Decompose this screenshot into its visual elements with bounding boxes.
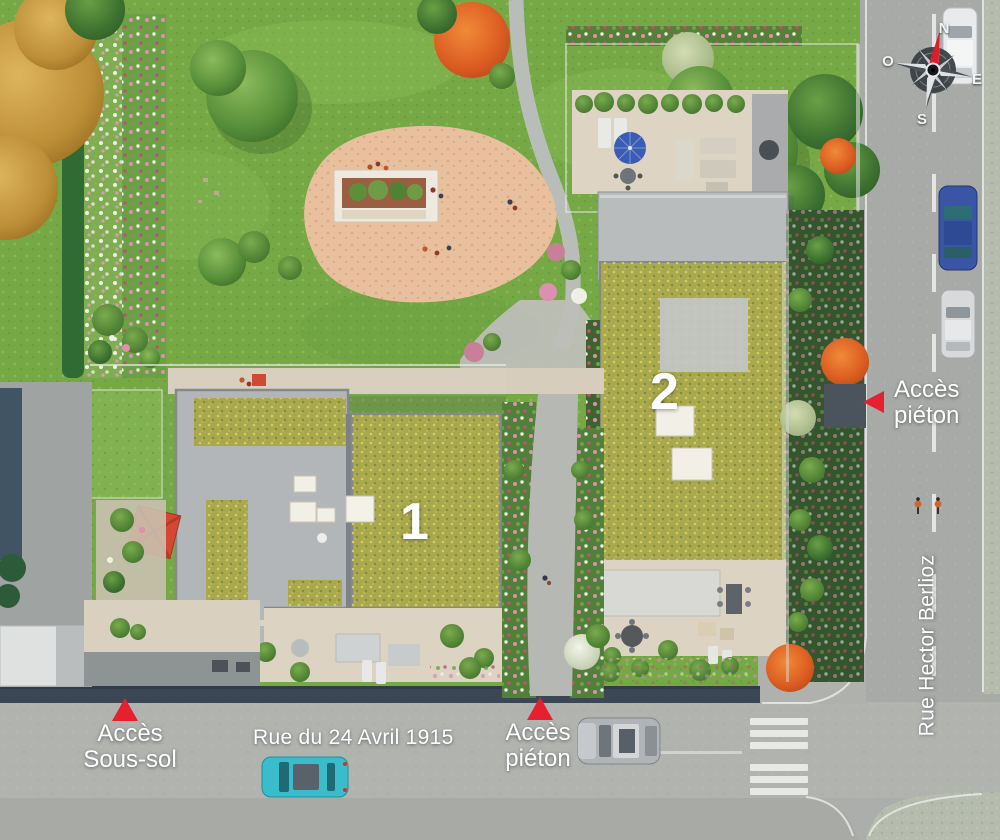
car-blue [939, 186, 977, 270]
compass-south-label: S [917, 111, 927, 128]
compass-east-label: E [972, 71, 982, 88]
pedestrian-access-walkway [824, 384, 866, 428]
car-teal [262, 757, 348, 797]
compass-north-label: N [939, 20, 950, 37]
central-pedestrian-path [502, 394, 610, 698]
central-planter [334, 170, 438, 222]
car-silver [941, 290, 975, 358]
building-2-green-roof [600, 262, 786, 568]
sidewalk-bottom [0, 798, 858, 840]
orange-tree-bottom [766, 644, 814, 692]
car-gray [578, 718, 660, 764]
site-plan-rendering: N O E S [0, 0, 1000, 840]
basement-ramp [84, 652, 260, 686]
building-1-east-wing [346, 414, 500, 610]
compass-west-label: O [882, 53, 894, 70]
building-1-west-wing [176, 390, 348, 608]
lane-dashes [932, 14, 936, 676]
site-plan: N O E S 1 2 Accès piéton Rue Hector Berl… [0, 0, 1000, 840]
building-2-roof-terrace [572, 90, 788, 194]
building-2-terrace [600, 560, 788, 668]
orange-tree-right [821, 338, 869, 386]
